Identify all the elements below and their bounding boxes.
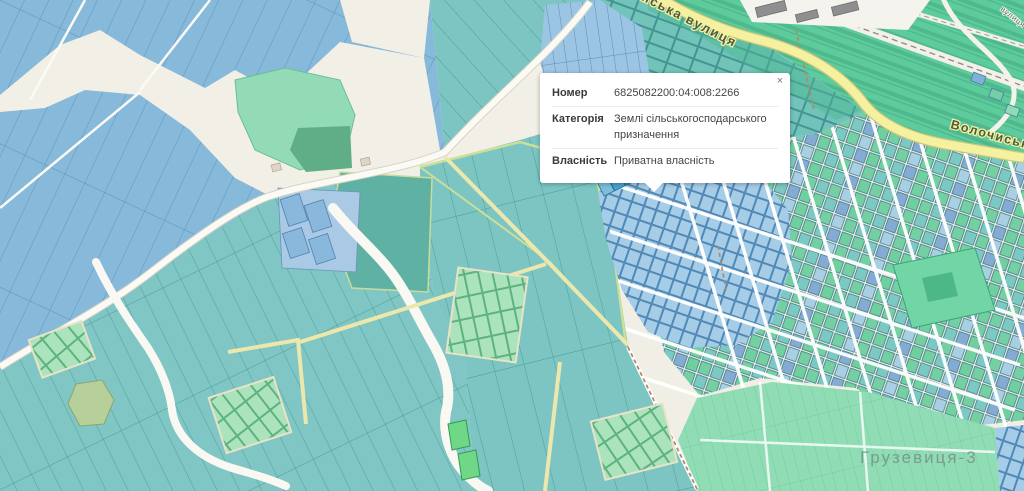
parcel-ownership-value: Приватна власність <box>614 154 778 170</box>
parcel-ownership-label: Власність <box>552 154 614 170</box>
parcel-number-value: 6825082200:04:008:2266 <box>614 86 778 102</box>
map-viewport[interactable]: Волочиська вулиця Волочиська вулиця Груз… <box>0 0 1024 491</box>
place-label: Грузевиця-3 <box>860 448 978 467</box>
parcel-info-popup: × Номер 6825082200:04:008:2266 Категорія… <box>540 73 790 183</box>
parcel-category-label: Категорія <box>552 112 614 144</box>
parcel-number-label: Номер <box>552 86 614 102</box>
parcel-category-row: Категорія Землі сільськогосподарського п… <box>552 106 778 148</box>
cadastral-map[interactable]: Волочиська вулиця Волочиська вулиця Груз… <box>0 0 1024 491</box>
parcel-ownership-row: Власність Приватна власність <box>552 148 778 174</box>
close-icon[interactable]: × <box>777 76 783 87</box>
parcel-number-row: Номер 6825082200:04:008:2266 <box>552 81 778 106</box>
parcel-category-value: Землі сільськогосподарського призначення <box>614 112 778 144</box>
